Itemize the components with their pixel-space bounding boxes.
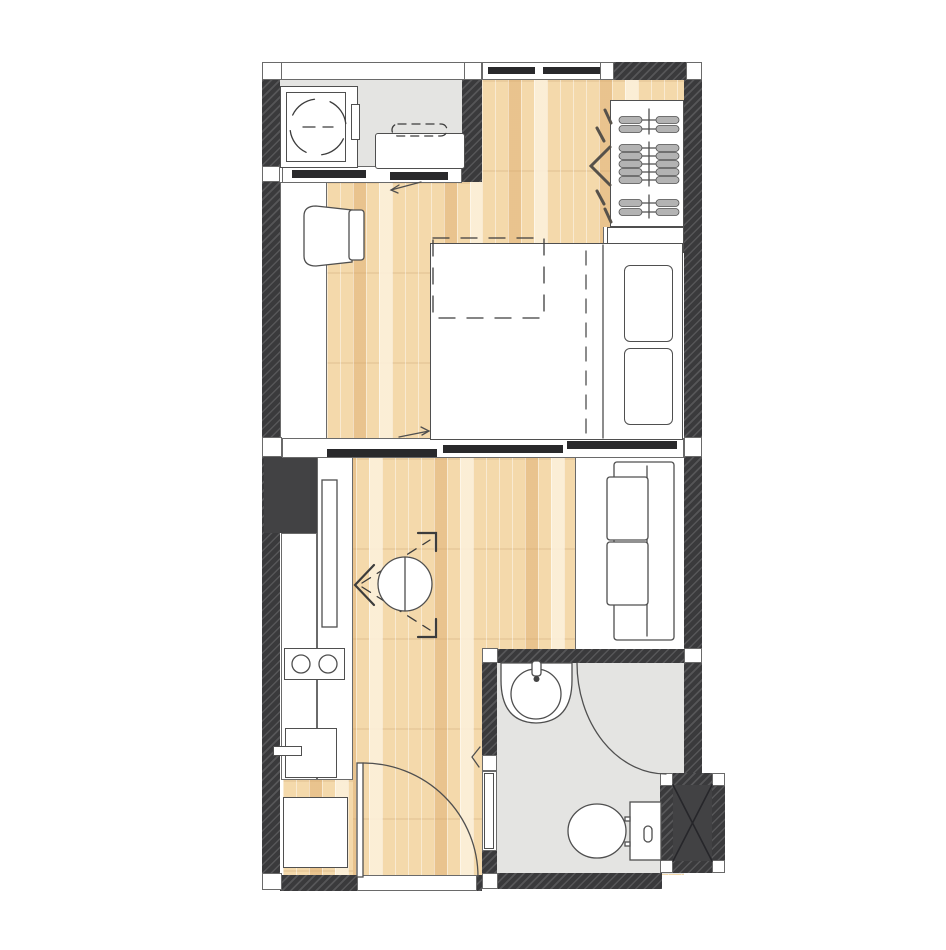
wall-right-mid (684, 457, 702, 648)
wall-bathroom-left-lower (482, 851, 497, 873)
floor-plan (0, 0, 946, 950)
column-marker (262, 437, 282, 457)
column-marker (262, 166, 280, 182)
column-marker (600, 62, 614, 80)
laundry-counter (375, 133, 465, 169)
refrigerator (283, 797, 348, 868)
desk (280, 182, 327, 443)
column-marker (482, 648, 498, 663)
pillow (624, 265, 673, 342)
column-marker (262, 62, 282, 80)
service-shaft-core (673, 785, 712, 861)
partition-panel-2 (443, 445, 563, 453)
partition-panel-1 (327, 449, 437, 457)
column-marker (660, 860, 673, 873)
wardrobe (610, 100, 684, 227)
entry-threshold (357, 875, 477, 891)
column-marker (684, 437, 702, 457)
bathroom-floor (497, 662, 684, 874)
wall-left-upper (262, 80, 280, 166)
column-marker (712, 773, 725, 786)
column-block (264, 455, 317, 533)
balcony-door-panel-2 (390, 172, 448, 180)
wall-bathroom-left-upper (482, 663, 497, 755)
cabinet-handle (273, 746, 302, 756)
balcony-top-window (262, 62, 482, 80)
balcony-door-panel-1 (292, 170, 366, 178)
column-marker (262, 873, 282, 890)
partition-panel-3 (567, 441, 677, 449)
wall-bathroom-top (498, 649, 684, 663)
wall-right-upper (684, 80, 702, 437)
wall-left-mid (262, 182, 280, 437)
cooktop (284, 648, 345, 680)
window-glazing-1 (488, 67, 535, 74)
column-marker (464, 62, 482, 80)
column-marker (684, 648, 702, 663)
wall-bottom-left (280, 875, 357, 891)
column-marker (660, 773, 673, 786)
column-marker (712, 860, 725, 873)
pillow (624, 348, 673, 425)
wall-right-lower (684, 663, 702, 775)
bathroom-door-leaf (484, 773, 494, 849)
washing-machine-side (351, 104, 360, 140)
wall-bathroom-bottom (498, 873, 662, 889)
sofa-zone (575, 458, 684, 650)
window-glazing-2 (543, 67, 600, 74)
column-marker (686, 62, 702, 80)
column-marker (482, 755, 497, 771)
column-marker (482, 873, 498, 889)
wall-balcony-right (462, 80, 482, 182)
washing-machine-inner (286, 92, 346, 162)
